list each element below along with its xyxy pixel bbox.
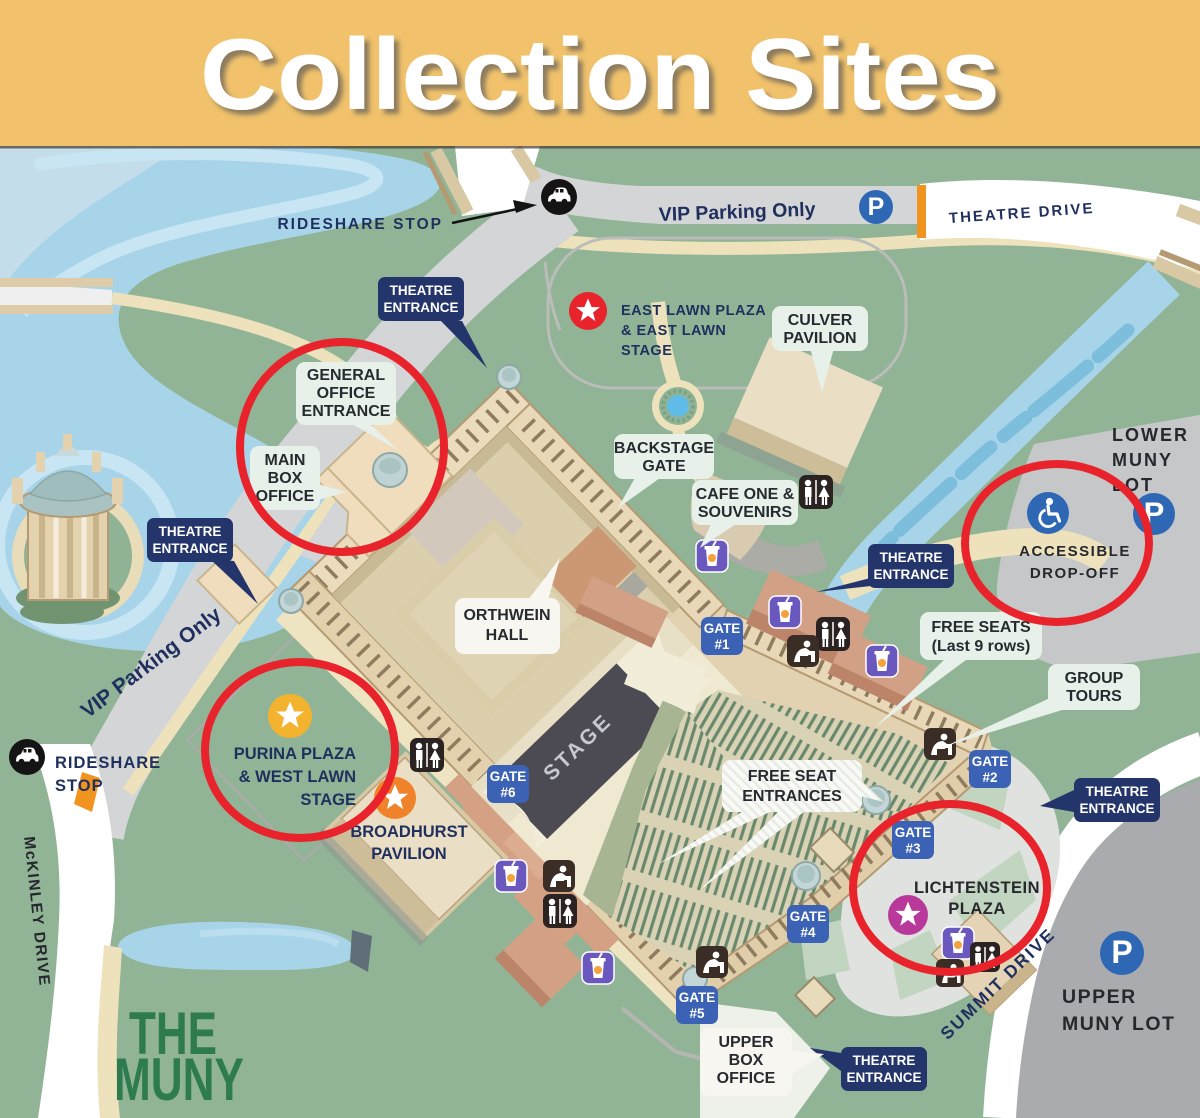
svg-text:GATE: GATE [704,621,741,636]
svg-text:THEATRE: THEATRE [880,550,943,565]
svg-text:BOX: BOX [729,1052,764,1069]
svg-text:DROP-OFF: DROP-OFF [1030,565,1120,582]
svg-text:PLAZA: PLAZA [948,900,1006,918]
svg-text:SOUVENIRS: SOUVENIRS [698,504,793,521]
svg-text:STAGE: STAGE [300,791,356,809]
svg-text:OFFICE: OFFICE [256,488,315,505]
svg-text:RIDESHARE: RIDESHARE [55,754,161,772]
svg-text:ACCESSIBLE: ACCESSIBLE [1019,543,1131,560]
svg-text:THEATRE: THEATRE [390,283,453,298]
svg-text:(Last 9 rows): (Last 9 rows) [932,638,1031,655]
svg-text:UPPER: UPPER [718,1034,774,1051]
svg-text:OFFICE: OFFICE [317,385,376,402]
svg-text:BACKSTAGE: BACKSTAGE [614,440,714,457]
svg-text:MUNY LOT: MUNY LOT [1062,1013,1175,1035]
svg-text:OFFICE: OFFICE [717,1070,776,1087]
svg-text:RIDESHARE STOP: RIDESHARE STOP [277,216,443,233]
svg-text:#6: #6 [500,785,516,800]
svg-text:ENTRANCE: ENTRANCE [1079,801,1154,816]
svg-text:MUNY: MUNY [114,1046,244,1113]
svg-text:& WEST LAWN: & WEST LAWN [239,768,356,786]
svg-text:& EAST LAWN: & EAST LAWN [621,323,726,339]
svg-text:THEATRE: THEATRE [1086,784,1149,799]
svg-text:MUNY: MUNY [1112,450,1173,470]
svg-text:MAIN: MAIN [265,452,306,469]
svg-text:ENTRANCE: ENTRANCE [152,541,227,556]
svg-text:ENTRANCE: ENTRANCE [302,403,391,420]
svg-text:#1: #1 [714,637,730,652]
svg-text:GATE: GATE [642,458,686,475]
svg-text:PAVILION: PAVILION [371,845,446,863]
svg-text:ENTRANCES: ENTRANCES [742,788,842,805]
svg-text:GATE: GATE [679,990,716,1005]
svg-text:UPPER: UPPER [1062,986,1137,1008]
svg-text:TOURS: TOURS [1066,688,1122,705]
svg-text:FREE SEATS: FREE SEATS [931,619,1031,636]
svg-text:STOP: STOP [55,777,104,795]
svg-text:ORTHWEIN: ORTHWEIN [463,607,550,624]
svg-text:#4: #4 [800,925,816,940]
svg-text:GENERAL: GENERAL [307,367,385,384]
svg-text:FREE SEAT: FREE SEAT [748,768,837,785]
svg-text:GATE: GATE [972,754,1009,769]
svg-text:CAFE ONE &: CAFE ONE & [696,486,795,503]
svg-text:THEATRE: THEATRE [159,524,222,539]
svg-text:EAST LAWN PLAZA: EAST LAWN PLAZA [621,303,766,319]
svg-text:GATE: GATE [490,769,527,784]
svg-text:P: P [868,193,885,221]
svg-text:PURINA PLAZA: PURINA PLAZA [234,745,356,763]
svg-text:THEATRE: THEATRE [853,1053,916,1068]
svg-text:CULVER: CULVER [788,312,853,329]
svg-text:LOWER: LOWER [1112,425,1189,445]
svg-text:HALL: HALL [486,627,529,644]
svg-text:ENTRANCE: ENTRANCE [846,1070,921,1085]
svg-text:P: P [1111,934,1132,970]
svg-text:GATE: GATE [790,909,827,924]
svg-text:#3: #3 [905,841,921,856]
svg-text:ENTRANCE: ENTRANCE [383,300,458,315]
svg-text:PAVILION: PAVILION [783,330,856,347]
svg-text:GROUP: GROUP [1065,670,1124,687]
svg-text:LICHTENSTEIN: LICHTENSTEIN [914,879,1040,897]
svg-text:#5: #5 [689,1006,705,1021]
svg-text:GATE: GATE [895,825,932,840]
svg-text:STAGE: STAGE [621,343,672,359]
svg-text:BROADHURST: BROADHURST [350,823,467,841]
svg-text:Collection Sites: Collection Sites [200,19,1000,131]
svg-text:#2: #2 [982,770,997,785]
svg-text:BOX: BOX [268,470,303,487]
svg-text:ENTRANCE: ENTRANCE [873,567,948,582]
